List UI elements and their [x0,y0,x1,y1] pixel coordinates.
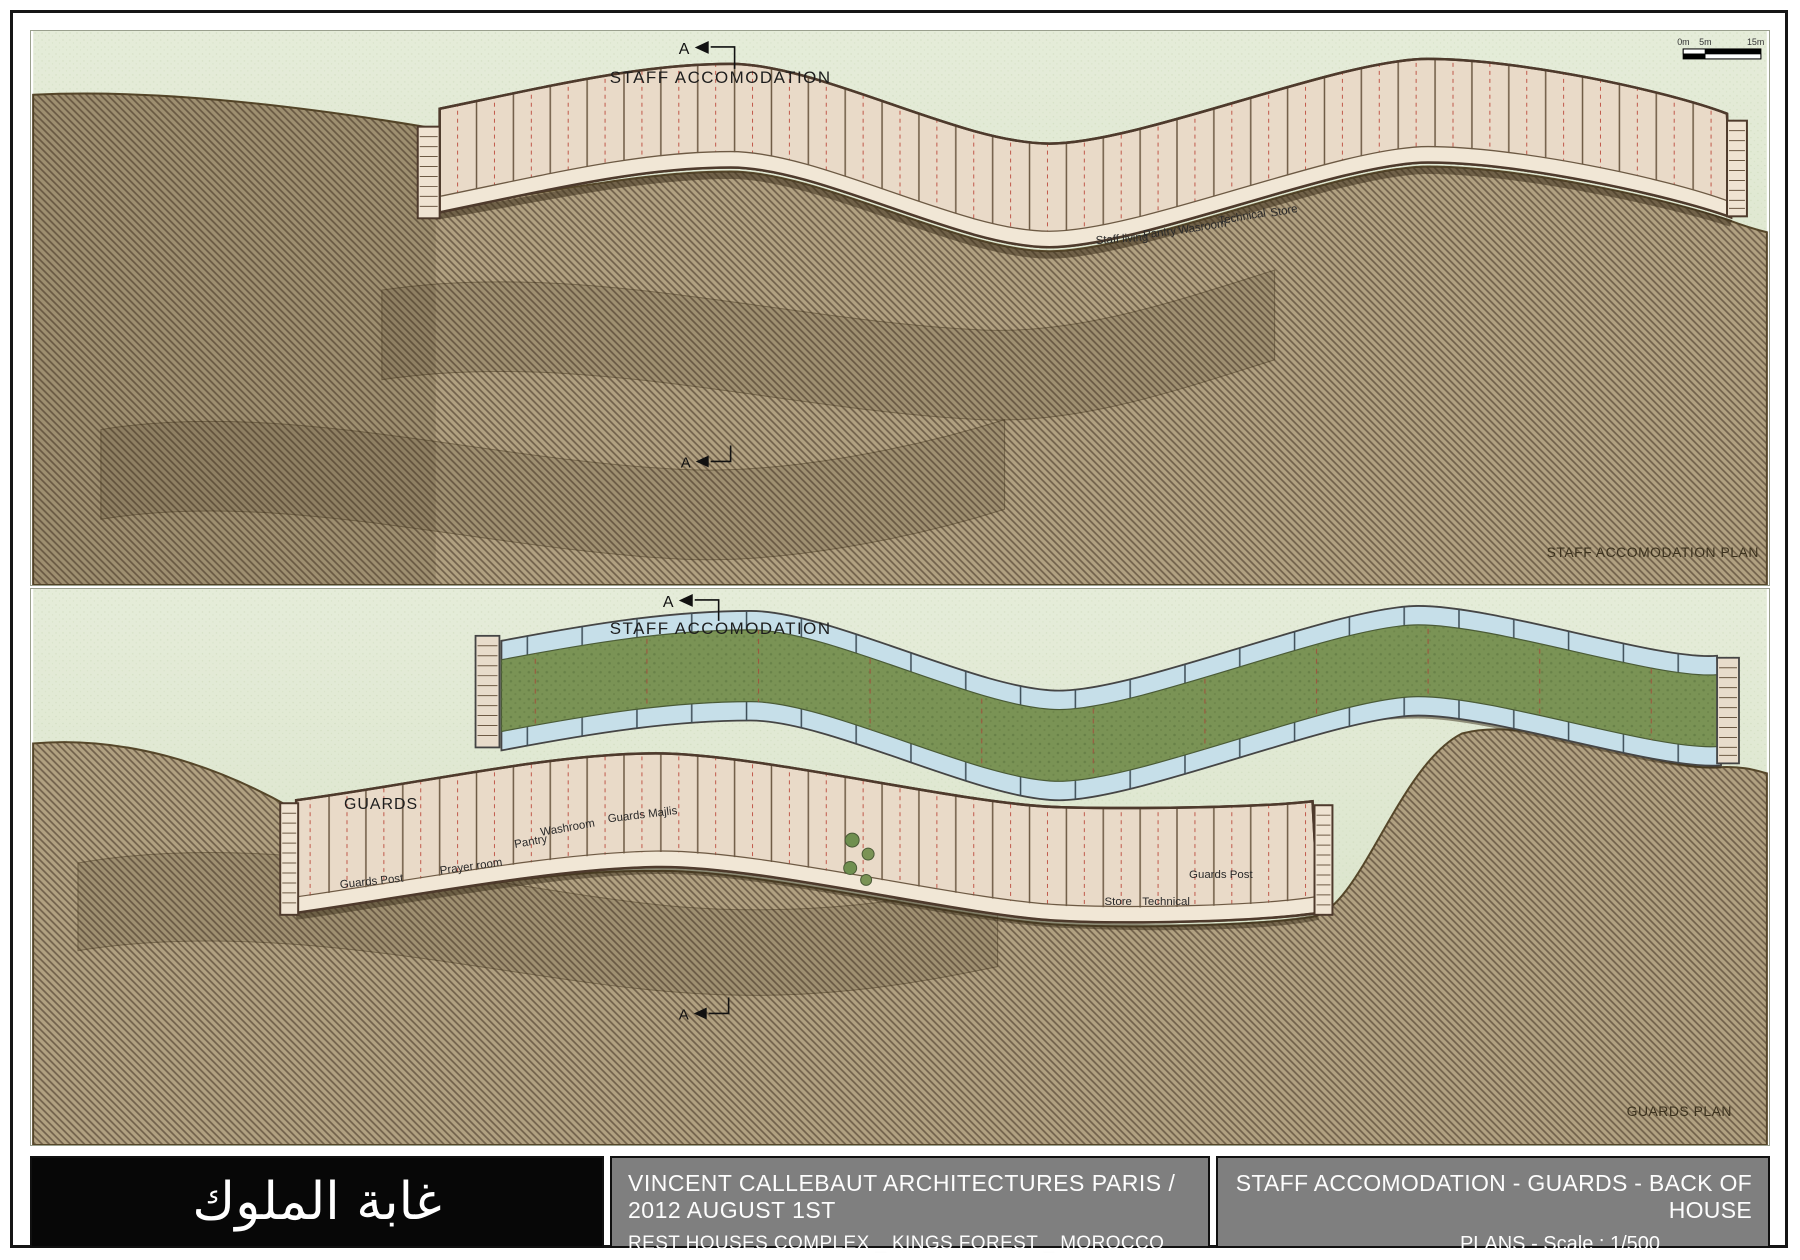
project-name-arabic-box: غابة الملوك [30,1156,604,1248]
staff-plan-drawing: A STAFF ACCOMODATION Staff living Pantry… [31,31,1769,585]
section-letter: A [679,41,690,58]
scale-label-5m: 5m [1699,37,1711,47]
section-letter: A [679,1006,689,1023]
room-label-technical: Technical [1142,896,1190,908]
architect-info-box: VINCENT CALLEBAUT ARCHITECTURES PARIS / … [610,1156,1210,1248]
plan-caption: GUARDS PLAN [1627,1103,1732,1119]
room-label-store: Store [1105,896,1132,908]
staff-accomodation-plan-panel: A STAFF ACCOMODATION Staff living Pantry… [30,30,1770,586]
staff-accomodation-heading: STAFF ACCOMODATION [610,68,832,87]
guards-plan-drawing: A STAFF ACCOMODATION GUARDS Guards Post … [31,589,1769,1145]
title-block: غابة الملوك VINCENT CALLEBAUT ARCHITECTU… [30,1156,1770,1248]
guards-plan-panel: A STAFF ACCOMODATION GUARDS Guards Post … [30,588,1770,1146]
entry-stair-right [1727,121,1747,217]
roof-stair-left [476,636,500,748]
guards-entry-right [1315,805,1333,915]
sheet-title-box: STAFF ACCOMODATION - GUARDS - BACK OF HO… [1216,1156,1770,1248]
section-letter: A [663,594,674,611]
scale-label-15m: 15m [1747,37,1764,47]
sheet-title-line2: PLANS - Scale : 1/500 [1218,1233,1752,1256]
architect-line: VINCENT CALLEBAUT ARCHITECTURES PARIS / … [628,1170,1208,1224]
project-name-arabic: غابة الملوك [192,1176,441,1228]
roof-stair-right [1717,658,1739,764]
staff-accomodation-heading: STAFF ACCOMODATION [610,619,832,638]
section-letter: A [681,454,691,471]
sheet-title-line1: STAFF ACCOMODATION - GUARDS - BACK OF HO… [1218,1170,1752,1224]
guards-heading: GUARDS [344,796,418,813]
project-line: REST HOUSES COMPLEX _ KINGS FOREST _ MOR… [628,1233,1208,1255]
room-label-guards-post-right: Guards Post [1189,869,1253,881]
scale-label-0m: 0m [1677,37,1689,47]
entry-stair-left [418,127,440,219]
plan-caption: STAFF ACCOMODATION PLAN [1547,544,1759,560]
guards-entry-left [280,803,298,915]
